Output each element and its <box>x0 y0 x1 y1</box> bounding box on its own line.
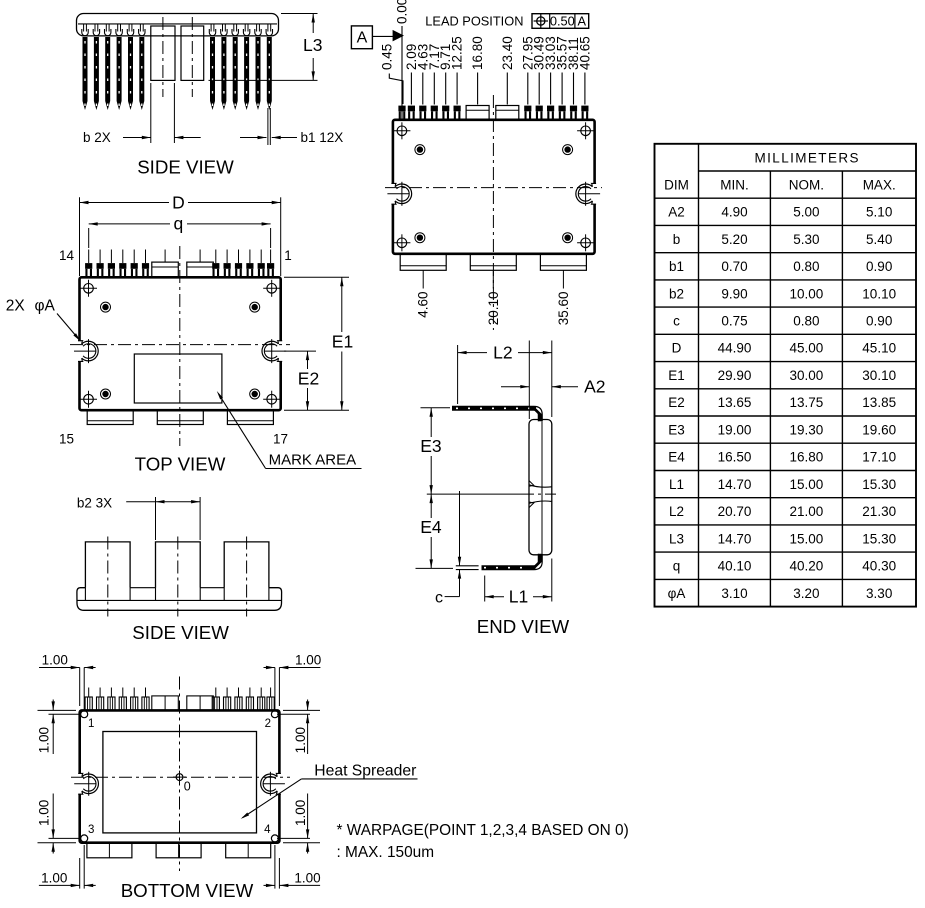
svg-text:4: 4 <box>264 824 271 836</box>
svg-text:17: 17 <box>273 432 288 447</box>
svg-text:12.25: 12.25 <box>450 36 465 70</box>
svg-text:1: 1 <box>284 248 292 263</box>
svg-text:D: D <box>172 192 185 212</box>
svg-text:40.10: 40.10 <box>718 559 752 574</box>
svg-text:3.30: 3.30 <box>866 586 892 601</box>
svg-text:SIDE VIEW: SIDE VIEW <box>137 157 234 178</box>
svg-text:14.70: 14.70 <box>718 531 752 546</box>
svg-text:5.30: 5.30 <box>793 232 819 247</box>
svg-text:0.90: 0.90 <box>866 314 892 329</box>
svg-text:4.60: 4.60 <box>416 292 431 318</box>
svg-text:E3: E3 <box>420 436 441 456</box>
svg-text:13.85: 13.85 <box>862 395 896 410</box>
svg-text:D: D <box>672 341 682 356</box>
svg-text:16.50: 16.50 <box>718 450 752 465</box>
svg-text:15.30: 15.30 <box>862 477 896 492</box>
svg-text:5.40: 5.40 <box>866 232 892 247</box>
svg-text:L3: L3 <box>669 531 684 546</box>
svg-text:2X: 2X <box>6 298 26 315</box>
svg-text:L2: L2 <box>669 504 684 519</box>
svg-text:1.00: 1.00 <box>36 727 51 753</box>
svg-text:MAX.: MAX. <box>863 177 896 192</box>
svg-text:c: c <box>435 589 443 606</box>
svg-text:23.40: 23.40 <box>500 36 515 70</box>
svg-text:20.10: 20.10 <box>486 292 501 326</box>
svg-text:15.30: 15.30 <box>862 531 896 546</box>
svg-text:1.00: 1.00 <box>36 800 51 826</box>
svg-text:1.00: 1.00 <box>293 800 308 826</box>
svg-text:20.70: 20.70 <box>718 504 752 519</box>
svg-text:21.30: 21.30 <box>862 504 896 519</box>
svg-text:E4: E4 <box>668 450 685 465</box>
svg-text:5.00: 5.00 <box>793 205 819 220</box>
svg-text:MARK AREA: MARK AREA <box>269 452 357 469</box>
svg-text:0.45: 0.45 <box>380 44 395 70</box>
svg-text:q: q <box>174 214 184 234</box>
svg-text:L1: L1 <box>669 477 684 492</box>
svg-text:14.70: 14.70 <box>718 477 752 492</box>
svg-text:29.90: 29.90 <box>718 368 752 383</box>
svg-text:40.30: 40.30 <box>862 559 896 574</box>
svg-text:A: A <box>357 30 368 47</box>
svg-text:A2: A2 <box>668 205 685 220</box>
svg-text:15.00: 15.00 <box>790 477 824 492</box>
svg-text:21.00: 21.00 <box>790 504 824 519</box>
svg-text:40.20: 40.20 <box>790 559 824 574</box>
svg-text:q: q <box>673 559 681 574</box>
svg-text:Heat Spreader: Heat Spreader <box>314 762 416 779</box>
svg-text:SIDE VIEW: SIDE VIEW <box>132 622 229 643</box>
svg-text:40.65: 40.65 <box>577 36 592 70</box>
svg-text:1.00: 1.00 <box>41 871 67 886</box>
svg-text:0.80: 0.80 <box>793 259 819 274</box>
svg-text:0.50: 0.50 <box>550 14 575 29</box>
svg-text:19.60: 19.60 <box>862 422 896 437</box>
svg-text:30.10: 30.10 <box>862 368 896 383</box>
svg-text:0: 0 <box>184 780 191 794</box>
svg-text:15.00: 15.00 <box>790 531 824 546</box>
svg-text:c: c <box>673 314 680 329</box>
svg-text:E2: E2 <box>298 368 319 388</box>
svg-text:NOM.: NOM. <box>789 177 824 192</box>
svg-text:30.00: 30.00 <box>790 368 824 383</box>
svg-text:16.80: 16.80 <box>790 450 824 465</box>
svg-text:1: 1 <box>88 718 94 730</box>
svg-text:0.75: 0.75 <box>721 314 747 329</box>
svg-text:35.60: 35.60 <box>556 292 571 326</box>
svg-text:LEAD POSITION: LEAD POSITION <box>425 13 523 28</box>
svg-text:b1 12X: b1 12X <box>301 130 344 145</box>
svg-text:1.00: 1.00 <box>42 653 68 668</box>
svg-text:45.10: 45.10 <box>862 341 896 356</box>
svg-text:0.70: 0.70 <box>721 259 747 274</box>
svg-text:1.00: 1.00 <box>293 727 308 753</box>
svg-text:17.10: 17.10 <box>862 450 896 465</box>
svg-text:3.10: 3.10 <box>721 586 747 601</box>
svg-text:19.00: 19.00 <box>718 422 752 437</box>
svg-text:10.10: 10.10 <box>862 286 896 301</box>
svg-text:b2 3X: b2 3X <box>77 495 112 510</box>
svg-text:10.00: 10.00 <box>790 286 824 301</box>
svg-text:BOTTOM VIEW: BOTTOM VIEW <box>121 880 254 901</box>
svg-text:MIN.: MIN. <box>720 177 749 192</box>
svg-text:A: A <box>578 14 587 29</box>
svg-text:: MAX. 150um: : MAX. 150um <box>337 844 435 861</box>
svg-text:3: 3 <box>88 824 94 836</box>
svg-text:DIM: DIM <box>664 177 689 192</box>
svg-text:b 2X: b 2X <box>83 130 111 145</box>
svg-text:19.30: 19.30 <box>790 422 824 437</box>
svg-text:φA: φA <box>668 586 686 601</box>
svg-text:4.90: 4.90 <box>721 205 747 220</box>
svg-text:45.00: 45.00 <box>790 341 824 356</box>
svg-text:L1: L1 <box>509 587 528 607</box>
svg-text:16.80: 16.80 <box>470 36 485 70</box>
svg-text:1.00: 1.00 <box>295 653 321 668</box>
svg-text:b2: b2 <box>669 286 684 301</box>
svg-text:5.10: 5.10 <box>866 205 892 220</box>
svg-text:TOP VIEW: TOP VIEW <box>135 454 226 475</box>
svg-text:13.75: 13.75 <box>790 395 824 410</box>
svg-text:b: b <box>673 232 681 247</box>
svg-text:15: 15 <box>59 432 74 447</box>
svg-text:44.90: 44.90 <box>718 341 752 356</box>
svg-text:φA: φA <box>35 298 56 315</box>
svg-text:L3: L3 <box>303 35 322 55</box>
svg-text:E1: E1 <box>332 332 353 352</box>
svg-text:E1: E1 <box>668 368 685 383</box>
svg-text:3.20: 3.20 <box>793 586 819 601</box>
svg-text:13.65: 13.65 <box>718 395 752 410</box>
svg-text:9.90: 9.90 <box>721 286 747 301</box>
svg-text:0.90: 0.90 <box>866 259 892 274</box>
svg-text:E4: E4 <box>420 517 442 537</box>
svg-text:2: 2 <box>265 718 271 730</box>
svg-text:MILLIMETERS: MILLIMETERS <box>754 150 859 165</box>
svg-text:END VIEW: END VIEW <box>477 616 570 637</box>
svg-text:1.00: 1.00 <box>294 871 320 886</box>
svg-text:L2: L2 <box>493 342 512 362</box>
svg-text:A2: A2 <box>584 377 605 397</box>
svg-text:E3: E3 <box>668 422 685 437</box>
svg-text:0.00: 0.00 <box>395 0 410 24</box>
svg-text:0.80: 0.80 <box>793 314 819 329</box>
svg-text:5.20: 5.20 <box>721 232 747 247</box>
svg-text:* WARPAGE(POINT 1,2,3,4 BASED: * WARPAGE(POINT 1,2,3,4 BASED ON 0) <box>337 822 629 839</box>
svg-text:14: 14 <box>59 248 75 263</box>
svg-text:b1: b1 <box>669 259 684 274</box>
svg-text:E2: E2 <box>668 395 685 410</box>
